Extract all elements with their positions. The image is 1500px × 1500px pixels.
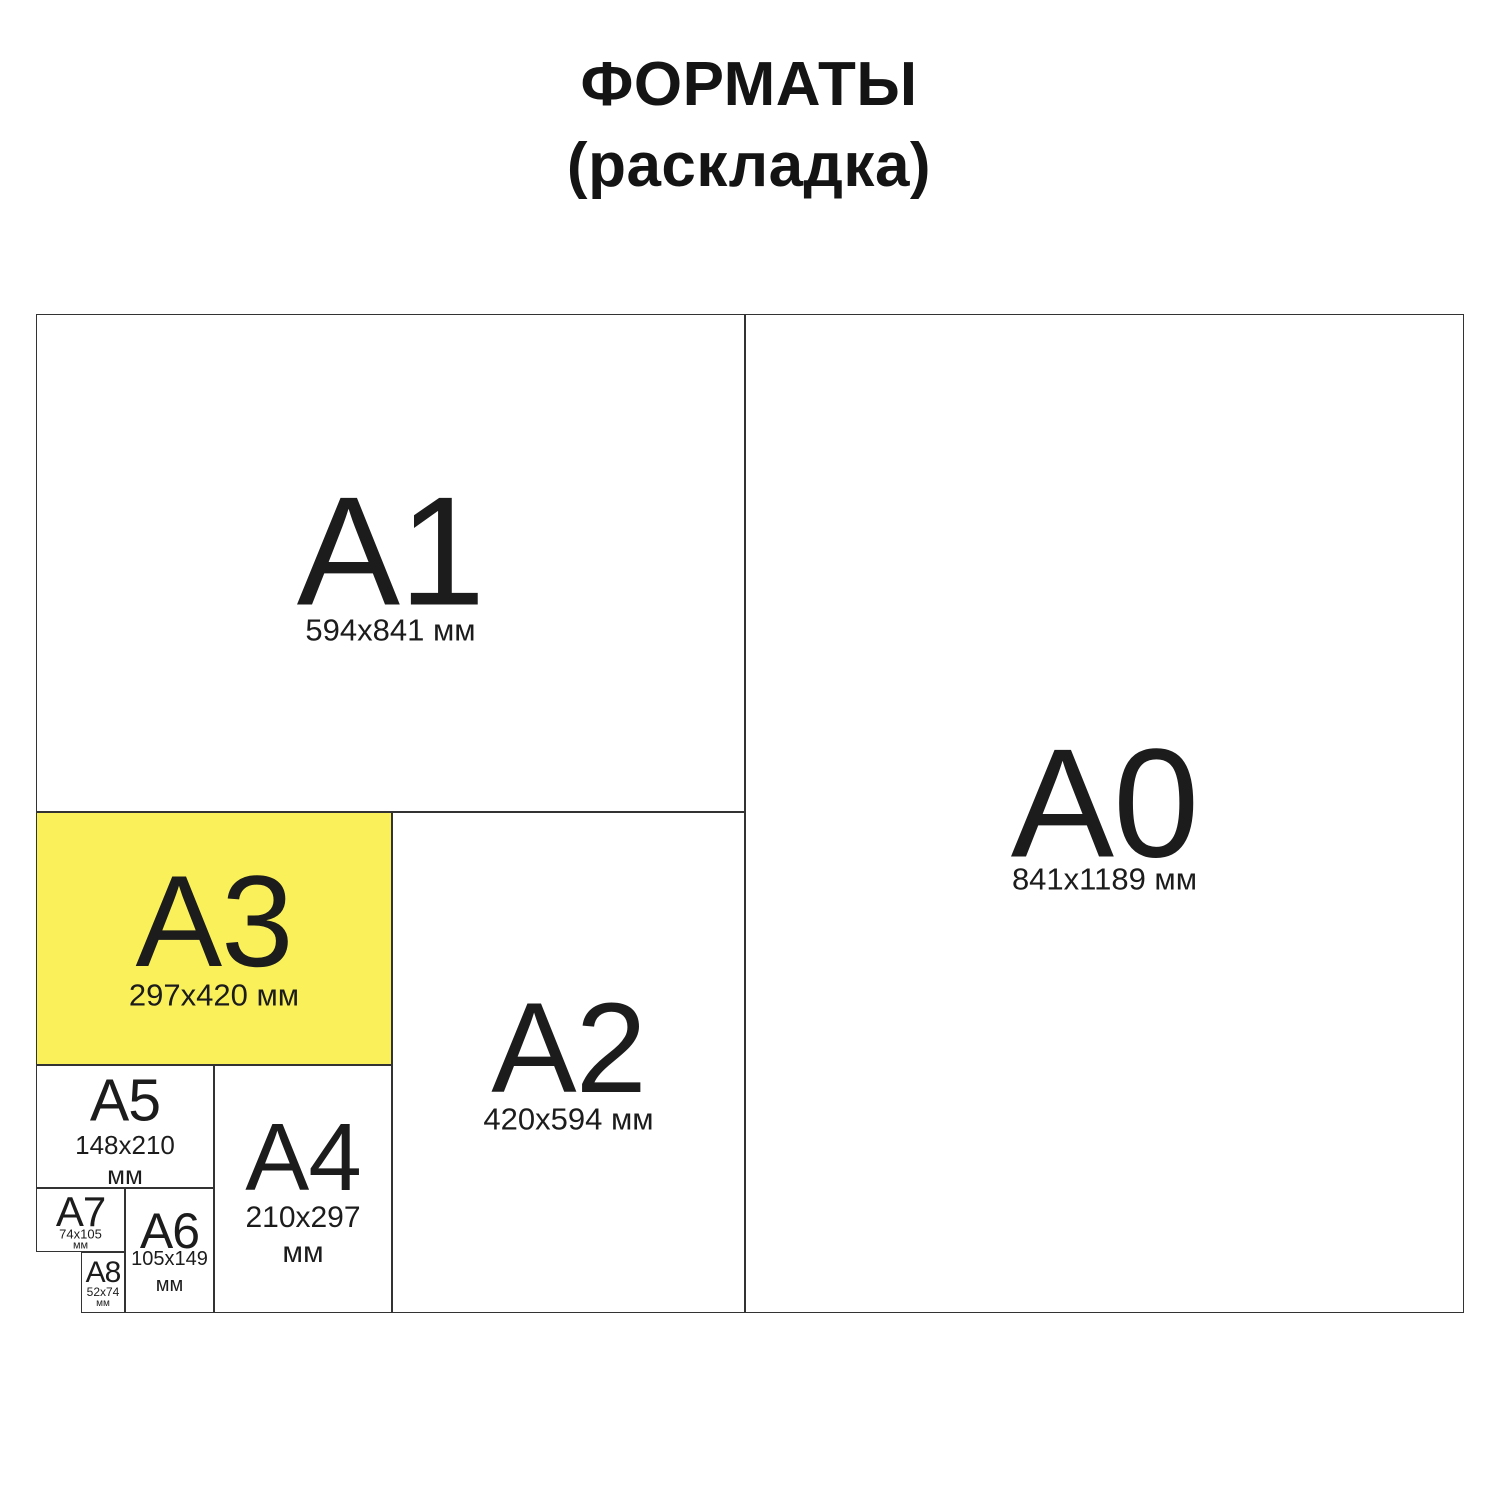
format-size-a0: 841x1189 мм	[1012, 864, 1197, 895]
format-label-a1: A1	[297, 474, 485, 629]
format-size-a4-line2: мм	[282, 1238, 323, 1268]
format-box-a4: A4 210x297 мм	[214, 1065, 392, 1313]
format-size-a1: 594x841 мм	[305, 615, 475, 646]
format-box-a1: A1 594x841 мм	[36, 314, 745, 812]
format-box-a7: A7 74x105 мм	[36, 1188, 125, 1252]
format-box-a8: A8 52x74 мм	[81, 1252, 125, 1313]
format-box-a5: A5 148x210 мм	[36, 1065, 214, 1188]
format-label-a4: A4	[245, 1110, 360, 1206]
format-size-a6-line1: 105x149	[131, 1249, 208, 1269]
format-size-a8-line2: мм	[96, 1299, 110, 1309]
format-size-a4-line1: 210x297	[245, 1203, 360, 1233]
format-label-a2: A2	[491, 985, 646, 1113]
format-box-a0: A0 841x1189 мм	[745, 314, 1464, 1313]
format-box-a3: A3 297x420 мм	[36, 812, 392, 1065]
format-box-a6: A6 105x149 мм	[125, 1188, 214, 1313]
format-size-a3: 297x420 мм	[129, 980, 299, 1011]
page-title-line2: (раскладка)	[567, 135, 931, 197]
format-label-a5: A5	[90, 1072, 160, 1131]
format-size-a7-line2: мм	[73, 1241, 88, 1252]
format-size-a2: 420x594 мм	[483, 1104, 653, 1135]
format-label-a3: A3	[135, 856, 292, 986]
page-title-line1: ФОРМАТЫ	[580, 54, 917, 116]
format-size-a6-line2: мм	[156, 1275, 184, 1295]
format-size-a5-line1: 148x210	[75, 1132, 175, 1158]
format-label-a8: A8	[86, 1258, 121, 1288]
format-size-a8-line1: 52x74	[87, 1286, 120, 1298]
format-box-a2: A2 420x594 мм	[392, 812, 745, 1313]
format-size-a5-line2: мм	[107, 1162, 143, 1188]
format-label-a0: A0	[1011, 726, 1199, 881]
paper-formats-diagram: ФОРМАТЫ (раскладка) A1 594x841 мм A0 841…	[0, 0, 1500, 1500]
